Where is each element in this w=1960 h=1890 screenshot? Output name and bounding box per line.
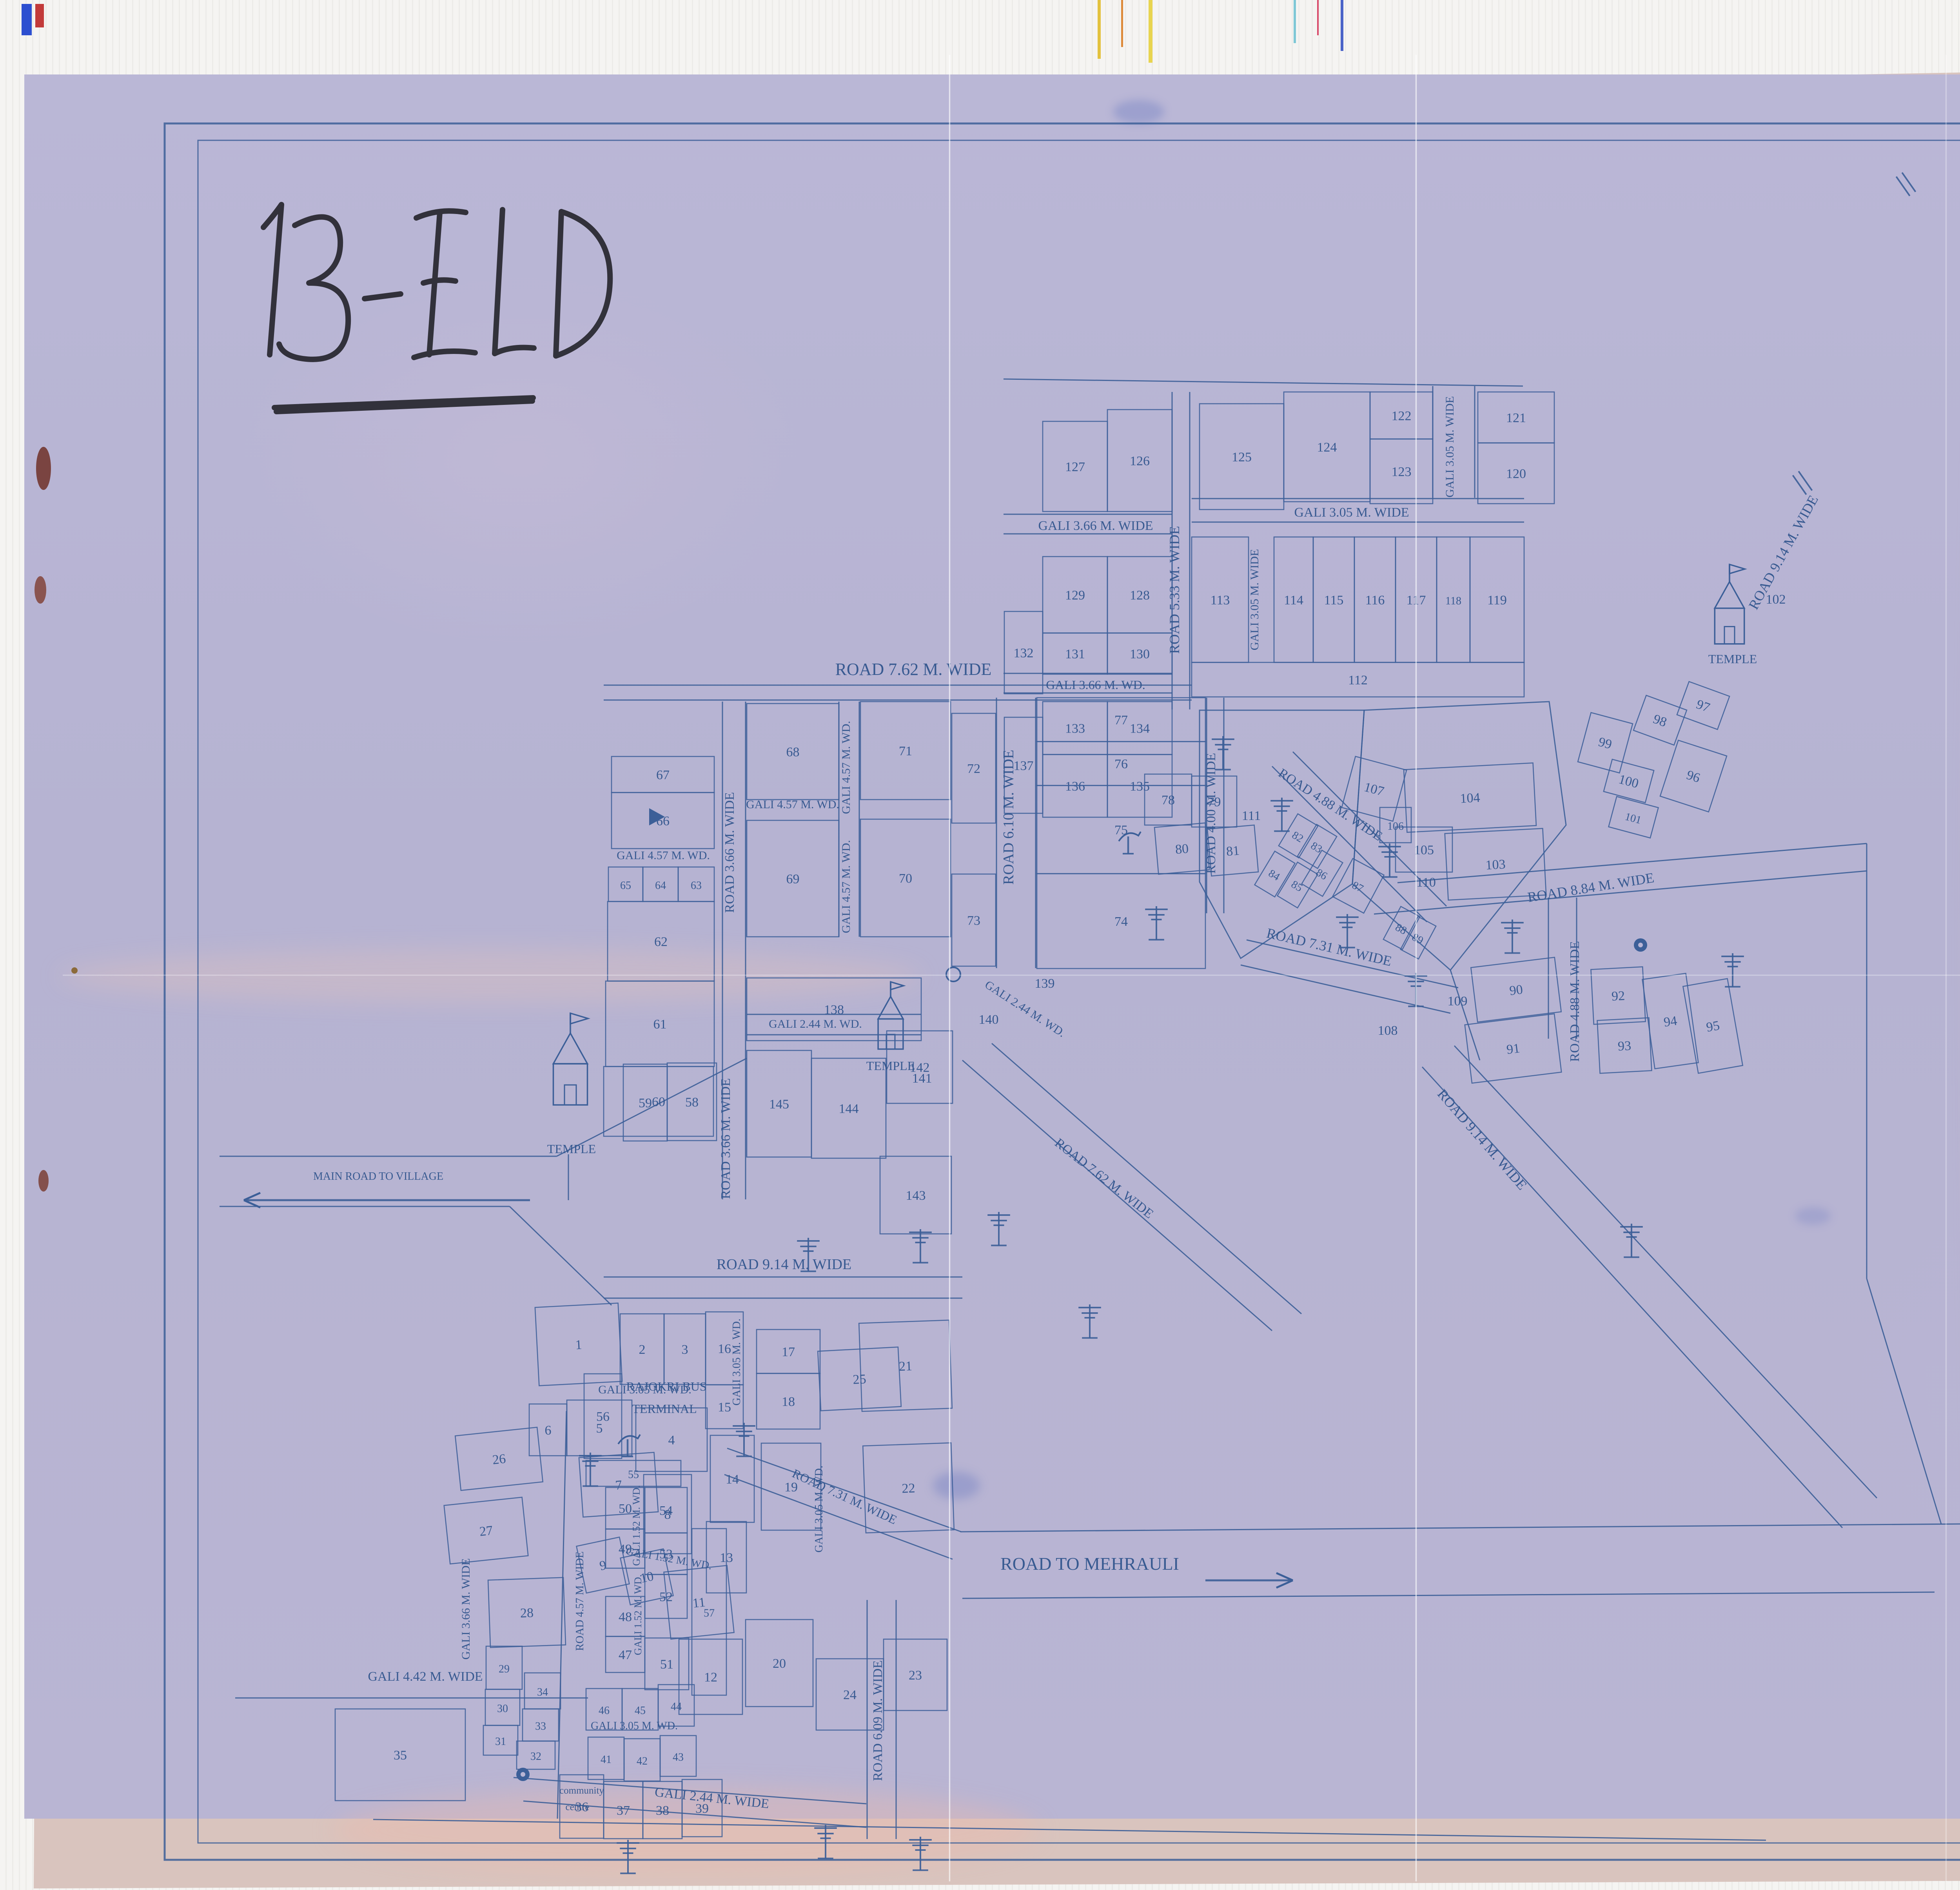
plot: 25 xyxy=(818,1347,901,1411)
plot-number: 67 xyxy=(656,768,670,782)
plot-number: 89 xyxy=(1410,931,1425,947)
handwriting-stroke xyxy=(279,217,348,359)
road-break-mark xyxy=(1896,172,1915,196)
map-text: ROAD TO MEHRAULI xyxy=(1000,1554,1179,1574)
plot: 97 xyxy=(1677,682,1730,729)
plot: 120 xyxy=(1478,443,1554,504)
plot-number: 139 xyxy=(1035,976,1055,991)
map-text: TEMPLE xyxy=(547,1142,596,1156)
plot: 71 xyxy=(860,702,951,800)
plot: 18 xyxy=(757,1373,820,1429)
plot-number: 68 xyxy=(786,745,800,760)
plot-number: 28 xyxy=(520,1605,534,1620)
road-label: ROAD 7.31 M. WIDE xyxy=(1265,925,1393,969)
plot-number: 121 xyxy=(1506,411,1526,425)
plot-number: 100 xyxy=(1617,772,1640,791)
plot-number: 88 xyxy=(1393,921,1408,937)
plot-number: 95 xyxy=(1705,1018,1721,1035)
plot-number: 113 xyxy=(1210,593,1230,608)
plot-number: 127 xyxy=(1065,460,1085,474)
road-label: GALI 2.44 M. WD. xyxy=(982,978,1067,1039)
fold-crease xyxy=(63,974,1960,976)
plot: 31 xyxy=(483,1725,518,1755)
plot-number: 99 xyxy=(1597,735,1613,752)
temple-door xyxy=(564,1085,576,1105)
plot-number: 23 xyxy=(909,1668,922,1683)
road-label: GALI 3.05 M. WD. xyxy=(591,1720,678,1732)
plot-number: 145 xyxy=(769,1097,789,1112)
plot-number: 134 xyxy=(1130,722,1150,736)
plot-number: 70 xyxy=(899,871,912,886)
plot: 114 xyxy=(1274,537,1313,662)
plot-number: 47 xyxy=(619,1648,632,1662)
plot-number: 26 xyxy=(492,1451,506,1467)
plot-number: 80 xyxy=(1175,842,1189,857)
plot-number: 12 xyxy=(704,1670,717,1685)
road-label: GALI 2.44 M. WD. xyxy=(769,1018,862,1030)
temple-roof xyxy=(878,996,903,1019)
plot: 118 xyxy=(1437,537,1470,662)
plot-number: 116 xyxy=(1365,593,1385,608)
road-line xyxy=(992,1043,1301,1314)
plot-number: 71 xyxy=(899,744,912,758)
road-label: GALI 3.05 M. WD. xyxy=(731,1319,743,1406)
plot: 20 xyxy=(746,1620,813,1707)
fold-crease xyxy=(949,55,951,1881)
plot: 90 xyxy=(1471,957,1561,1022)
plot-number: 7 xyxy=(615,1478,622,1493)
plot-number: 61 xyxy=(653,1017,667,1032)
road-label: GALI 4.57 M. WD. xyxy=(617,849,710,862)
plot-number: 55 xyxy=(628,1469,639,1481)
plot-number: 82 xyxy=(1290,829,1305,845)
plot: 35 xyxy=(335,1709,465,1801)
plot-number: 123 xyxy=(1392,465,1412,479)
plot-number: 41 xyxy=(601,1754,612,1766)
plot-number: 9 xyxy=(598,1558,608,1574)
plot-number: 64 xyxy=(655,880,666,892)
plot: 22 xyxy=(863,1443,954,1533)
plot: 124 xyxy=(1284,392,1370,502)
plot: 2 xyxy=(620,1314,664,1384)
fold-crease xyxy=(1945,55,1947,1881)
plot-number: 74 xyxy=(1114,914,1128,929)
plot-number: 51 xyxy=(660,1657,673,1672)
plot-number: 124 xyxy=(1317,440,1337,455)
plot-number: 114 xyxy=(1284,593,1303,608)
plot-number: 24 xyxy=(843,1688,857,1702)
road-label: ROAD 4.88 M. WIDE xyxy=(1276,766,1385,844)
plot-number: 31 xyxy=(495,1736,506,1748)
plot-number: 25 xyxy=(853,1372,867,1387)
plot: 54 xyxy=(645,1487,687,1533)
plot-number: 54 xyxy=(659,1504,673,1518)
plot: 98 xyxy=(1633,695,1687,745)
plot: 65 xyxy=(608,867,643,901)
road-label: ROAD 3.66 M. WIDE xyxy=(719,1078,733,1199)
road-label: ROAD 4.88 M. WIDE xyxy=(1568,941,1582,1062)
plot: 143 xyxy=(880,1156,951,1234)
plot: 131 xyxy=(1043,633,1107,674)
plot: 125 xyxy=(1200,404,1284,510)
plot-number: 33 xyxy=(535,1720,546,1732)
plot-number: 72 xyxy=(967,762,980,776)
plot: 29 xyxy=(486,1646,522,1689)
plot-polygon xyxy=(1352,702,1566,970)
fold-crease xyxy=(1415,55,1417,1881)
plot-number: 16 xyxy=(718,1342,731,1356)
plot: 100 xyxy=(1604,759,1654,803)
plot: 28 xyxy=(488,1578,566,1648)
plot-number: 17 xyxy=(782,1345,795,1359)
handwriting-stroke xyxy=(414,211,475,357)
map-text: centre xyxy=(565,1802,589,1812)
handwriting-stroke xyxy=(556,212,610,356)
map-text: RAJOKRI BUS xyxy=(626,1379,706,1393)
plot: 68 xyxy=(747,704,839,800)
plot-number: 136 xyxy=(1065,779,1085,794)
plot-number: 107 xyxy=(1363,780,1386,799)
plot: 64 xyxy=(643,867,678,901)
plot-number: 125 xyxy=(1232,450,1252,464)
road-label: GALI 3.05 M. WIDE xyxy=(1294,505,1409,520)
layout-map: 1271261251241221231211201291281311301321… xyxy=(220,172,1960,1873)
plot-number: 81 xyxy=(1226,843,1240,859)
road-label: ROAD 4.57 M. WIDE xyxy=(574,1551,586,1651)
road-label: ROAD 9.14 M. WIDE xyxy=(717,1256,851,1273)
plot: 128 xyxy=(1107,557,1172,633)
plot: 144 xyxy=(811,1058,886,1158)
plot-number: 45 xyxy=(635,1705,646,1717)
plot-number: 3 xyxy=(682,1342,688,1357)
road-label: GALI 1.52 M. WD. xyxy=(632,1574,644,1655)
plot: 129 xyxy=(1043,557,1107,633)
plot: 127 xyxy=(1043,421,1107,511)
plot-number: 6 xyxy=(545,1423,552,1438)
plot-number: 98 xyxy=(1651,712,1669,730)
plot-number: 101 xyxy=(1624,811,1643,827)
road-label: GALI 3.05 M. WIDE xyxy=(1248,549,1261,651)
plot: 121 xyxy=(1478,392,1554,443)
plot-number: 144 xyxy=(839,1102,859,1116)
road-label: ROAD 6.09 M. WIDE xyxy=(871,1660,885,1781)
road-label: ROAD 7.62 M. WIDE xyxy=(835,660,992,679)
plot: 14 xyxy=(710,1435,754,1522)
road-label: ROAD 4.00 M. WIDE xyxy=(1204,753,1218,874)
plot: 95 xyxy=(1683,979,1742,1074)
plot: 32 xyxy=(517,1741,555,1769)
plot-number: 38 xyxy=(656,1803,669,1818)
road-label: ROAD 6.10 M. WIDE xyxy=(1000,750,1017,885)
plot-number: 97 xyxy=(1694,697,1712,715)
plot-number: 22 xyxy=(902,1481,915,1496)
plot-number: 15 xyxy=(718,1400,731,1415)
plot-number: 44 xyxy=(671,1701,682,1713)
plot-number: 73 xyxy=(967,914,980,928)
plot-number: 133 xyxy=(1065,722,1085,736)
plot: 17 xyxy=(757,1330,820,1373)
road-label: GALI 4.57 M. WD. xyxy=(840,721,853,814)
plot-number: 35 xyxy=(394,1748,407,1763)
plot-number: 90 xyxy=(1509,982,1524,998)
plot-number: 83 xyxy=(1308,840,1324,856)
layout-plan-drawing: 1271261251241221231211201291281311301321… xyxy=(0,0,1960,1890)
plot-number: 60 xyxy=(652,1095,665,1109)
plot-number: 84 xyxy=(1266,867,1282,883)
road-line xyxy=(373,1819,1766,1840)
plot: 63 xyxy=(678,867,714,901)
handwriting-stroke xyxy=(365,294,401,299)
plot: 67 xyxy=(612,756,714,793)
road-label: GALI 3.05 M. WIDE xyxy=(1443,396,1456,498)
plot: 101 xyxy=(1609,796,1659,838)
plot-number: 20 xyxy=(773,1656,786,1671)
plot-number: 1 xyxy=(575,1338,583,1353)
plot: 21 xyxy=(859,1320,952,1411)
plot: 104 xyxy=(1404,763,1536,832)
plot-number: 85 xyxy=(1289,878,1305,894)
plot-number: 108 xyxy=(1378,1023,1398,1038)
plot-number: 118 xyxy=(1445,595,1461,607)
plot: 4 xyxy=(636,1408,707,1471)
map-text: TEMPLE xyxy=(1708,652,1757,666)
plot: 116 xyxy=(1354,537,1396,662)
road-label: ROAD 3.66 M. WIDE xyxy=(722,792,737,913)
plot: 73 xyxy=(952,874,996,966)
plot-number: 37 xyxy=(617,1803,630,1818)
plot: 27 xyxy=(444,1497,528,1564)
road-label: GALI 4.57 M. WD. xyxy=(746,798,839,811)
road-line xyxy=(1867,1279,1941,1524)
plot: 83 xyxy=(1298,824,1337,868)
road-line xyxy=(962,1592,1935,1598)
plot-number: 18 xyxy=(782,1395,795,1409)
plot-number: 4 xyxy=(668,1433,675,1447)
plot-number: 129 xyxy=(1065,588,1085,603)
plot-number: 132 xyxy=(1014,646,1034,660)
plot-number: 32 xyxy=(530,1750,541,1763)
plot: 119 xyxy=(1470,537,1524,662)
plot: 84 xyxy=(1255,851,1295,897)
plot: 123 xyxy=(1370,439,1433,504)
plot: 69 xyxy=(747,820,839,937)
plot-number: 111 xyxy=(1242,809,1261,823)
plot: 34 xyxy=(524,1673,561,1709)
plot-number: 115 xyxy=(1324,593,1344,608)
plot-number: 143 xyxy=(906,1188,926,1203)
plot-number: 104 xyxy=(1460,791,1481,806)
plot: 3 xyxy=(664,1314,706,1384)
plot-number: 69 xyxy=(786,872,800,887)
plot: 23 xyxy=(884,1639,947,1710)
plot: 145 xyxy=(747,1050,811,1157)
map-text: TERMINAL xyxy=(632,1402,697,1416)
road-label: ROAD 9.14 M. WIDE xyxy=(1434,1086,1530,1193)
temple-door xyxy=(1724,627,1735,644)
plot-number: 30 xyxy=(497,1703,508,1715)
temple-door xyxy=(886,1034,895,1049)
road-line xyxy=(1004,379,1523,386)
plot-number: 58 xyxy=(685,1095,699,1110)
plot-number: 93 xyxy=(1617,1039,1632,1054)
plot-number: 43 xyxy=(673,1751,684,1763)
plot-number: 135 xyxy=(1130,779,1150,794)
temple-flag xyxy=(891,982,904,990)
plot-number: 76 xyxy=(1114,757,1128,771)
road-label: GALI 4.42 M. WIDE xyxy=(368,1669,483,1684)
road-break-mark xyxy=(1793,471,1812,494)
plot-number: 21 xyxy=(898,1359,912,1374)
map-text: community xyxy=(559,1785,604,1796)
plot: 133 xyxy=(1043,702,1107,755)
plot: 113 xyxy=(1192,537,1249,662)
plot-number: 122 xyxy=(1392,409,1412,423)
sheet-frame xyxy=(165,123,1960,1860)
plot: 72 xyxy=(952,713,996,823)
plot: 70 xyxy=(860,819,951,937)
plot-number: 57 xyxy=(704,1607,715,1620)
plot-number: 119 xyxy=(1487,593,1507,608)
plot-number: 120 xyxy=(1506,467,1526,481)
plot-number: 140 xyxy=(979,1012,999,1027)
plot-number: 48 xyxy=(619,1610,632,1624)
handwriting-stroke xyxy=(263,205,281,355)
plot: 74 xyxy=(1037,874,1205,969)
plot-number: 130 xyxy=(1130,647,1150,662)
plot: 77 xyxy=(1037,698,1205,742)
plot-number: 109 xyxy=(1448,994,1468,1008)
plot-number: 126 xyxy=(1130,454,1150,468)
plot: 115 xyxy=(1313,537,1354,662)
plot: 51 xyxy=(645,1638,689,1690)
road-label: ROAD 8.84 M. WIDE xyxy=(1526,870,1655,905)
road-label: GALI 3.66 M. WIDE xyxy=(1038,519,1153,533)
plot-number: 50 xyxy=(619,1502,632,1516)
tube-well-icon xyxy=(521,1772,525,1777)
handwritten-code-13-ELD xyxy=(263,205,610,412)
plot-number: 63 xyxy=(691,880,702,892)
plot: 43 xyxy=(660,1736,696,1776)
plot-number: 77 xyxy=(1114,713,1128,727)
plot-number: 52 xyxy=(659,1590,673,1604)
road-label: ROAD 5.33 M. WIDE xyxy=(1167,526,1182,654)
plot: 134 xyxy=(1107,702,1172,755)
plot-number: 91 xyxy=(1506,1041,1521,1057)
plot-number: 112 xyxy=(1348,673,1368,687)
plot: 11 xyxy=(664,1565,734,1639)
handwriting-stroke xyxy=(495,210,534,354)
map-text: TEMPLE xyxy=(866,1059,915,1073)
road-line xyxy=(510,1206,612,1305)
temple-roof xyxy=(1715,582,1744,608)
plot: 132 xyxy=(1004,611,1043,694)
plot: 62 xyxy=(608,901,714,981)
temple-roof xyxy=(554,1033,588,1064)
plot-number: 14 xyxy=(726,1472,739,1487)
plot: 75 xyxy=(1037,785,1205,874)
plot-number: 131 xyxy=(1065,647,1085,662)
plot: 66 xyxy=(612,793,714,849)
plot: 42 xyxy=(624,1739,660,1781)
map-text: MAIN ROAD TO VILLAGE xyxy=(313,1170,443,1183)
plot: 58 xyxy=(667,1063,717,1141)
plot-number: 29 xyxy=(499,1663,510,1675)
road-label: ROAD 7.62 M. WIDE xyxy=(1052,1135,1156,1221)
plot-number: 86 xyxy=(1314,867,1329,883)
road-label: GALI 4.57 M. WD. xyxy=(840,840,853,933)
plot: 33 xyxy=(523,1709,559,1741)
road-label: ROAD 7.31 M. WIDE xyxy=(790,1466,899,1527)
plot: 80 xyxy=(1154,823,1209,874)
plot: 6 xyxy=(529,1404,567,1456)
plot-number: 62 xyxy=(654,935,668,949)
plot-number: 42 xyxy=(637,1755,648,1767)
plot-number: 138 xyxy=(824,1003,844,1017)
frame-outer xyxy=(165,123,1960,1860)
plot-number: 46 xyxy=(599,1705,610,1717)
tube-well-icon xyxy=(1638,943,1643,947)
plot: 55 xyxy=(586,1460,681,1486)
plot: 41 xyxy=(588,1737,624,1779)
plot-number: 19 xyxy=(784,1480,798,1495)
road-label: GALI 2.44 M. WIDE xyxy=(654,1785,769,1811)
plot-number: 78 xyxy=(1161,793,1175,807)
plot-number: 2 xyxy=(639,1342,646,1357)
road-label: GALI 3.66 M. WIDE xyxy=(459,1558,472,1660)
scanned-blueprint-sheet: 1271261251241221231211201291281311301321… xyxy=(0,0,1960,1890)
plot: 93 xyxy=(1597,1018,1652,1074)
plot-number: 94 xyxy=(1663,1014,1678,1030)
plot: 85 xyxy=(1278,862,1318,908)
temple-flag xyxy=(1730,564,1745,573)
plot-number: 34 xyxy=(537,1686,548,1698)
plot: 130 xyxy=(1107,633,1172,674)
road-line xyxy=(1454,1046,1877,1498)
road-label: GALI 1.52 M. WD. xyxy=(631,1485,642,1566)
plot-number: 141 xyxy=(912,1071,932,1086)
road-label: GALI 3.66 M. WD. xyxy=(1046,678,1145,692)
plot: 96 xyxy=(1660,740,1727,812)
plot-number: 92 xyxy=(1611,989,1625,1004)
temple-flag xyxy=(570,1013,588,1024)
plot: 76 xyxy=(1037,742,1205,785)
plot: 105 xyxy=(1396,827,1452,872)
plot-number: 128 xyxy=(1130,588,1150,603)
plot-number: 103 xyxy=(1485,857,1506,873)
plot-number: 110 xyxy=(1416,875,1436,890)
plot-number: 65 xyxy=(620,880,631,892)
plot: 30 xyxy=(485,1689,520,1725)
plot-number: 27 xyxy=(479,1523,494,1539)
plot: 112 xyxy=(1192,662,1524,697)
plot: 99 xyxy=(1578,713,1633,773)
handwriting-stroke xyxy=(274,398,533,412)
plot: 122 xyxy=(1370,392,1433,439)
plot-number: 56 xyxy=(596,1409,610,1424)
plot: 61 xyxy=(606,981,714,1067)
road-line xyxy=(960,1524,1960,1532)
plot-number: 59 xyxy=(639,1096,652,1110)
plot-number: 96 xyxy=(1685,768,1702,786)
plot: 126 xyxy=(1107,410,1172,511)
